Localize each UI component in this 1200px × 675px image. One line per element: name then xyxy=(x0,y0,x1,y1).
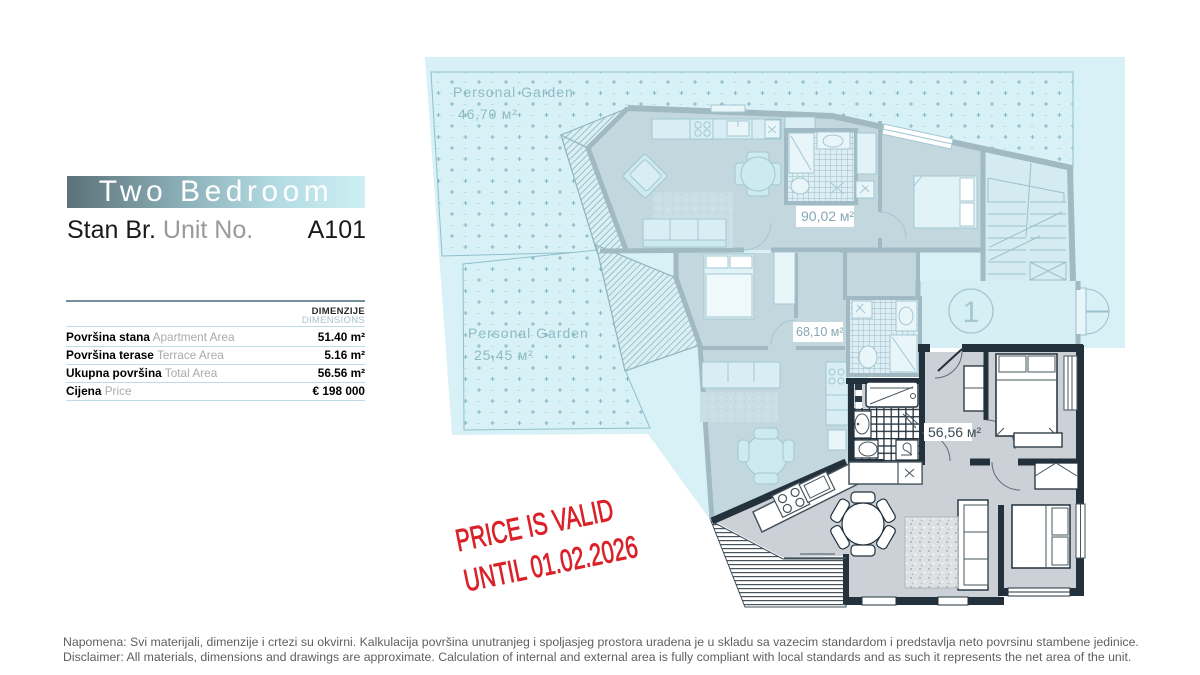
svg-text:1: 1 xyxy=(963,296,980,329)
svg-text:Personal Garden: Personal Garden xyxy=(453,84,574,100)
svg-text:Personal Garden: Personal Garden xyxy=(468,325,589,341)
svg-text:25,45 м²: 25,45 м² xyxy=(474,347,534,363)
svg-text:56,56 м²: 56,56 м² xyxy=(928,424,982,440)
svg-text:90,02 м²: 90,02 м² xyxy=(801,208,855,224)
svg-text:68,10 м²: 68,10 м² xyxy=(796,325,844,339)
svg-text:46,70 м²: 46,70 м² xyxy=(458,106,518,122)
